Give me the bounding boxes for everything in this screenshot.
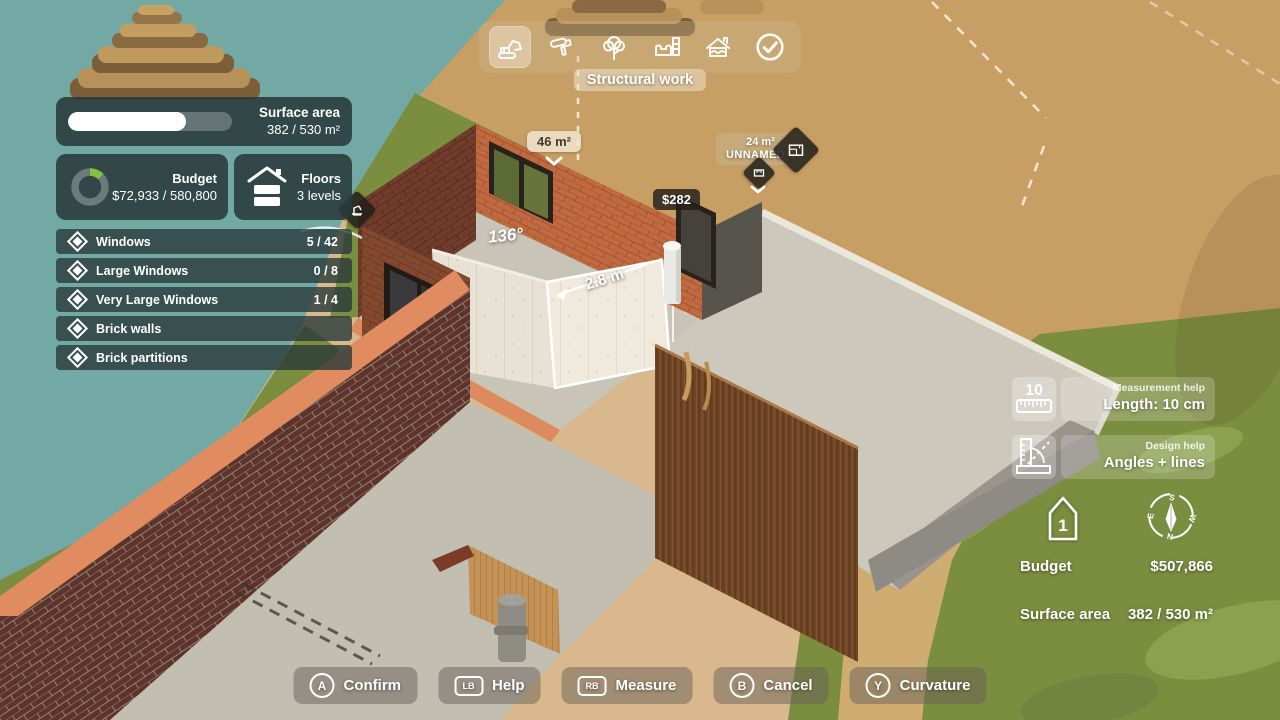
curvature-button[interactable]: Y Curvature <box>850 667 987 704</box>
surface-panel-value: 382 / 530 m² <box>267 122 340 137</box>
confirm-label: Confirm <box>344 677 402 694</box>
gamepad-a-icon: A <box>310 673 335 698</box>
tab-roofing[interactable] <box>697 26 739 68</box>
compass-south: S <box>1168 492 1176 503</box>
svg-text:10: 10 <box>1025 382 1043 399</box>
surface-progress-bar <box>68 112 232 131</box>
surface-panel-title: Surface area <box>259 105 340 120</box>
build-mode-toolbar <box>479 21 801 73</box>
measurement-help-tile[interactable]: Measurement help Length: 10 cm <box>1061 377 1215 421</box>
gamepad-rb-icon: RB <box>578 676 607 696</box>
surface-status-row: Surface area 382 / 530 m² <box>1020 606 1213 623</box>
tree-icon <box>600 33 628 61</box>
material-label: Large Windows <box>96 264 188 278</box>
help-label: Help <box>492 677 525 694</box>
material-label: Brick partitions <box>96 351 188 365</box>
tab-structural-work[interactable] <box>489 26 531 68</box>
cancel-button[interactable]: B Cancel <box>713 667 828 704</box>
material-row-windows[interactable]: Windows 5 / 42 <box>56 229 352 254</box>
floor-level-number: 1 <box>1058 516 1067 535</box>
material-count: 5 / 42 <box>307 235 338 249</box>
budget-panel-title: Budget <box>172 171 217 186</box>
budget-panel-value: $72,933 / 580,800 <box>112 188 217 203</box>
measurement-help-value: Length: 10 cm <box>1061 395 1205 414</box>
angle-measurement: 136° <box>487 224 524 248</box>
compass[interactable]: S W N E <box>1144 489 1198 543</box>
diamond-icon <box>67 260 88 281</box>
budget-donut-gauge <box>68 165 112 209</box>
material-row-large-windows[interactable]: Large Windows 0 / 8 <box>56 258 352 283</box>
diamond-icon <box>67 231 88 252</box>
excavator-icon <box>495 33 525 61</box>
diamond-icon <box>67 289 88 310</box>
ruler-mini-icon <box>753 167 765 179</box>
active-tool-label: Structural work <box>574 69 706 91</box>
ruler-icon: 10 <box>1014 379 1054 419</box>
material-label: Windows <box>96 235 151 249</box>
surface-status-label: Surface area <box>1020 606 1110 623</box>
measurement-help-category: Measurement help <box>1061 382 1205 395</box>
measure-label: Measure <box>616 677 677 694</box>
measure-button[interactable]: RB Measure <box>562 667 693 704</box>
measurement-help-icon-tile[interactable]: 10 <box>1012 377 1056 421</box>
surface-progress-fill <box>68 112 186 131</box>
check-circle-icon <box>755 32 785 62</box>
gamepad-lb-icon: LB <box>454 676 483 696</box>
material-count: 1 / 4 <box>314 293 338 307</box>
chevron-down-icon <box>544 156 564 167</box>
design-help-value: Angles + lines <box>1061 453 1205 472</box>
floors-icon <box>245 164 289 210</box>
paint-roller-icon <box>548 33 576 61</box>
material-label: Brick walls <box>96 322 161 336</box>
design-help-tile[interactable]: Design help Angles + lines <box>1061 435 1215 479</box>
material-count: 0 / 8 <box>314 264 338 278</box>
wall-area-label[interactable]: 46 m² <box>527 131 581 152</box>
diamond-icon <box>67 318 88 339</box>
gamepad-b-icon: B <box>729 673 754 698</box>
floors-panel-title: Floors <box>301 171 341 186</box>
material-label: Very Large Windows <box>96 293 218 307</box>
diamond-icon <box>67 347 88 368</box>
cost-label[interactable]: $282 <box>653 189 700 210</box>
budget-status-label: Budget <box>1020 558 1072 575</box>
tab-landscaping[interactable] <box>593 26 635 68</box>
budget-status-row: Budget $507,866 <box>1020 558 1213 575</box>
controller-action-bar: A Confirm LB Help RB Measure B Cancel Y … <box>294 667 987 704</box>
blueprint-icon <box>788 142 805 159</box>
budget-panel: Budget $72,933 / 580,800 <box>56 154 228 220</box>
compass-east: E <box>1145 512 1156 520</box>
compass-north: N <box>1166 531 1174 542</box>
design-help-icon-tile[interactable] <box>1012 435 1056 479</box>
confirm-button[interactable]: A Confirm <box>294 667 418 704</box>
gamepad-y-icon: Y <box>866 673 891 698</box>
crane-mini-icon <box>350 203 364 217</box>
material-row-very-large-windows[interactable]: Very Large Windows 1 / 4 <box>56 287 352 312</box>
design-help-category: Design help <box>1061 440 1205 453</box>
material-row-brick-partitions[interactable]: Brick partitions <box>56 345 352 370</box>
floors-panel: Floors 3 levels <box>234 154 352 220</box>
curvature-label: Curvature <box>900 677 971 694</box>
material-row-brick-walls[interactable]: Brick walls <box>56 316 352 341</box>
surface-status-value: 382 / 530 m² <box>1128 606 1213 623</box>
tab-painting[interactable] <box>541 26 583 68</box>
cancel-label: Cancel <box>763 677 812 694</box>
compass-west: W <box>1187 513 1198 524</box>
tab-furnishing[interactable] <box>645 26 687 68</box>
roof-icon <box>704 33 732 61</box>
furniture-icon <box>652 33 680 61</box>
chevron-down-icon <box>750 185 766 194</box>
surface-area-panel: Surface area 382 / 530 m² <box>56 97 352 146</box>
help-button[interactable]: LB Help <box>438 667 541 704</box>
angle-tool-icon <box>1014 436 1054 478</box>
floor-level-indicator[interactable]: 1 <box>1046 491 1080 543</box>
budget-status-value: $507,866 <box>1150 558 1213 575</box>
game-screen: 46 m² $282 24 m² UNNAMED 4 136° 2.8 m <box>0 0 1280 720</box>
tab-validate[interactable] <box>749 26 791 68</box>
floors-panel-value: 3 levels <box>297 188 341 203</box>
